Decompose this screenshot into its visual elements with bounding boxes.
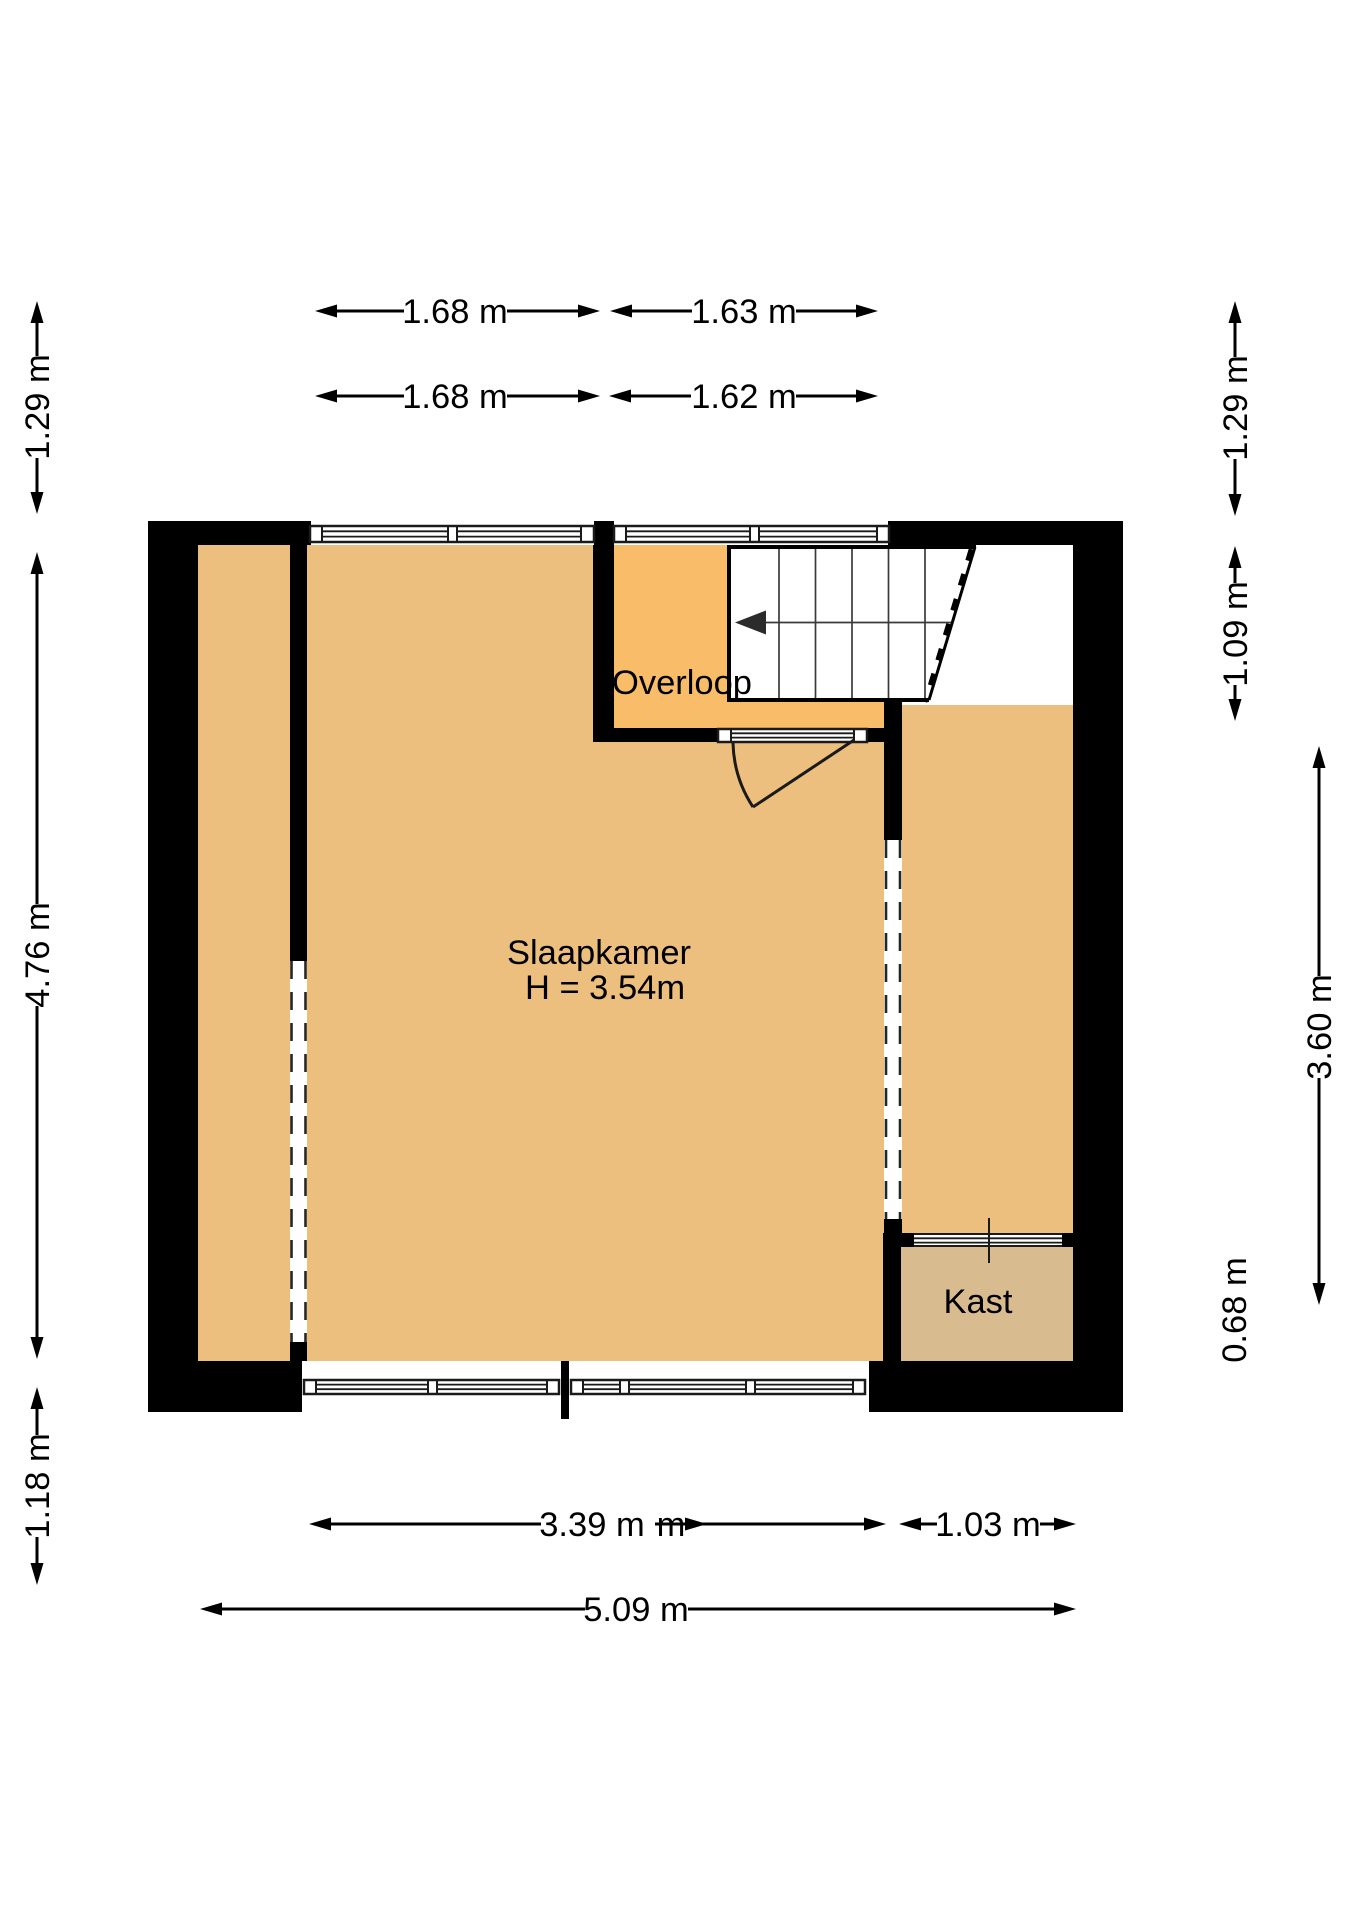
- svg-text:3.60 m: 3.60 m: [1301, 974, 1339, 1079]
- svg-text:Overloop: Overloop: [612, 664, 752, 702]
- svg-text:Slaapkamer: Slaapkamer: [507, 934, 691, 972]
- svg-text:1.68 m: 1.68 m: [402, 378, 507, 416]
- svg-text:1.29 m: 1.29 m: [1217, 355, 1255, 460]
- svg-text:1.09 m: 1.09 m: [1217, 581, 1255, 686]
- svg-text:0.68 m: 0.68 m: [1216, 1257, 1254, 1362]
- svg-text:1.18 m: 1.18 m: [19, 1433, 57, 1538]
- svg-text:H = 3.54m: H = 3.54m: [525, 969, 685, 1007]
- svg-text:5.09 m: 5.09 m: [583, 1591, 688, 1629]
- svg-text:1.03 m: 1.03 m: [935, 1506, 1040, 1544]
- svg-text:1.29 m: 1.29 m: [19, 354, 57, 459]
- svg-text:4.76 m: 4.76 m: [19, 902, 57, 1007]
- svg-text:1.68 m: 1.68 m: [402, 293, 507, 331]
- svg-text:3.39 m: 3.39 m: [539, 1506, 644, 1544]
- svg-text:1.63 m: 1.63 m: [691, 293, 796, 331]
- svg-text:Kast: Kast: [943, 1283, 1012, 1321]
- svg-text:1.62 m: 1.62 m: [691, 378, 796, 416]
